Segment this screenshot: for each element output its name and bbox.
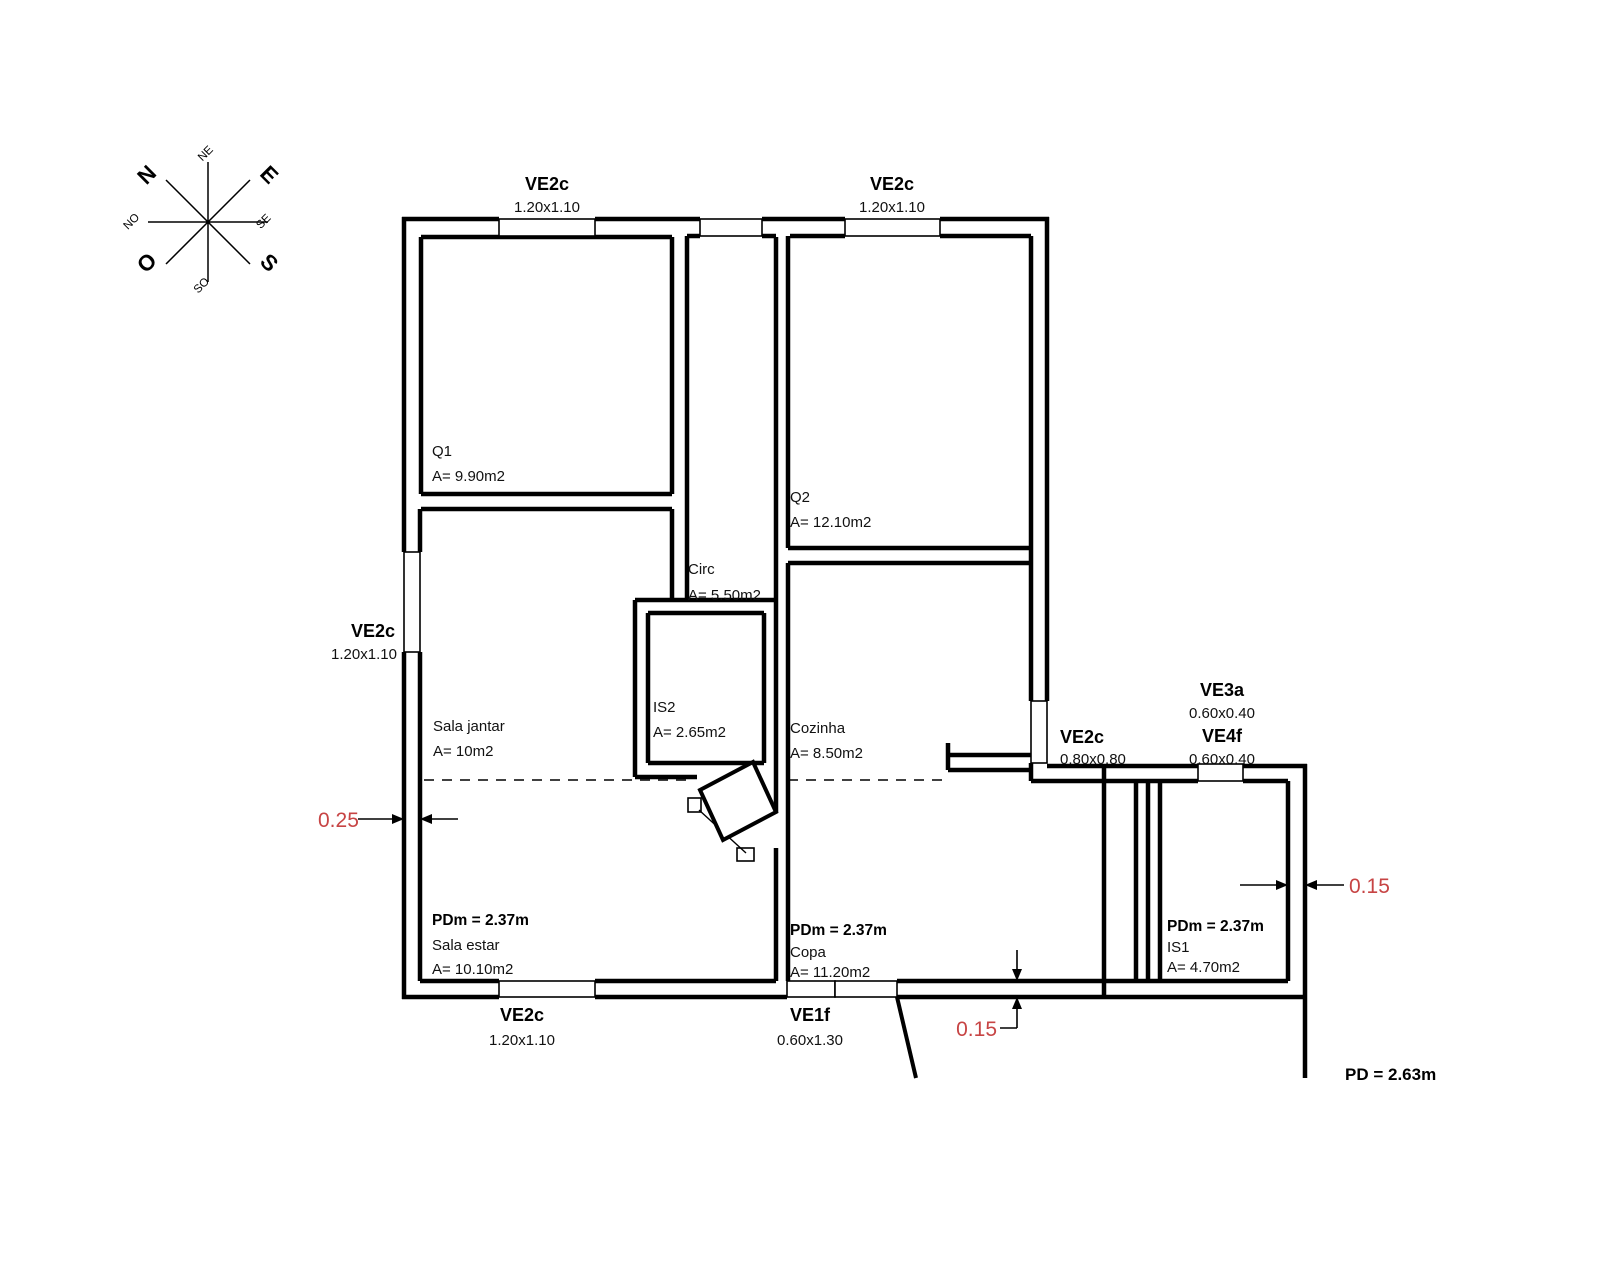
room-is1-pdm: PDm = 2.37m	[1167, 918, 1264, 935]
window-left-label: VE2c	[351, 621, 395, 641]
room-copa-name: Copa	[790, 944, 827, 961]
window-ve3a-label: VE3a	[1200, 680, 1245, 700]
ceiling-height-label: PD = 2.63m	[1345, 1065, 1436, 1084]
room-cozinha-area: A= 8.50m2	[790, 745, 863, 762]
room-copa-pdm: PDm = 2.37m	[790, 922, 887, 939]
window-bottom	[499, 981, 595, 997]
dimension-right-value: 0.15	[1349, 875, 1390, 898]
room-sala-estar-name: Sala estar	[432, 937, 500, 954]
room-q1-area: A= 9.90m2	[432, 468, 505, 485]
room-sala-jantar-name: Sala jantar	[433, 718, 505, 735]
room-cozinha-name: Cozinha	[790, 720, 846, 737]
room-is1-name: IS1	[1167, 939, 1190, 956]
window-top-circ	[700, 219, 762, 236]
room-q2-area: A= 12.10m2	[790, 514, 871, 531]
room-q1-name: Q1	[432, 443, 452, 460]
canvas-background	[0, 0, 1600, 1280]
window-kitchen-label: VE2c	[1060, 727, 1104, 747]
window-ve1f	[787, 981, 835, 997]
room-copa-area: A= 11.20m2	[790, 964, 870, 981]
room-circ-area: A= 5.50m2	[688, 587, 761, 604]
room-is2-name: IS2	[653, 699, 676, 716]
room-sala-estar-area: A= 10.10m2	[432, 961, 513, 978]
window-ve4f-label: VE4f	[1202, 726, 1243, 746]
window-top-left	[499, 219, 595, 236]
window-kitchen-size: 0.80x0.80	[1060, 751, 1126, 768]
window-top-right-size: 1.20x1.10	[859, 199, 925, 216]
window-kitchen	[1031, 701, 1047, 763]
window-ve3a-size: 0.60x0.40	[1189, 705, 1255, 722]
dimension-left-value: 0.25	[318, 809, 359, 832]
room-is1-area: A= 4.70m2	[1167, 959, 1240, 976]
kitchen-door-jamb-bottom	[737, 848, 754, 861]
room-circ-name: Circ	[688, 561, 715, 578]
window-top-right-label: VE2c	[870, 174, 914, 194]
kitchen-door-jamb-top	[688, 798, 701, 812]
window-left-size: 1.20x1.10	[331, 646, 397, 663]
window-top-left-size: 1.20x1.10	[514, 199, 580, 216]
compass-rays	[148, 162, 268, 282]
room-q2-name: Q2	[790, 489, 810, 506]
entry-door-threshold	[835, 981, 897, 997]
window-left	[404, 552, 420, 652]
room-sala-estar-pdm: PDm = 2.37m	[432, 912, 529, 929]
window-ve1f-label: VE1f	[790, 1005, 831, 1025]
window-top-right	[845, 219, 940, 236]
window-bottom-label: VE2c	[500, 1005, 544, 1025]
dimension-bottom-value: 0.15	[956, 1018, 997, 1041]
room-sala-jantar-area: A= 10m2	[433, 743, 493, 760]
window-top-left-label: VE2c	[525, 174, 569, 194]
window-ve1f-size: 0.60x1.30	[777, 1032, 843, 1049]
floor-plan: N E S O NE SE SO NO	[0, 0, 1600, 1280]
room-is2-area: A= 2.65m2	[653, 724, 726, 741]
window-ve4f-size: 0.60x0.40	[1189, 751, 1255, 768]
window-bottom-size: 1.20x1.10	[489, 1032, 555, 1049]
